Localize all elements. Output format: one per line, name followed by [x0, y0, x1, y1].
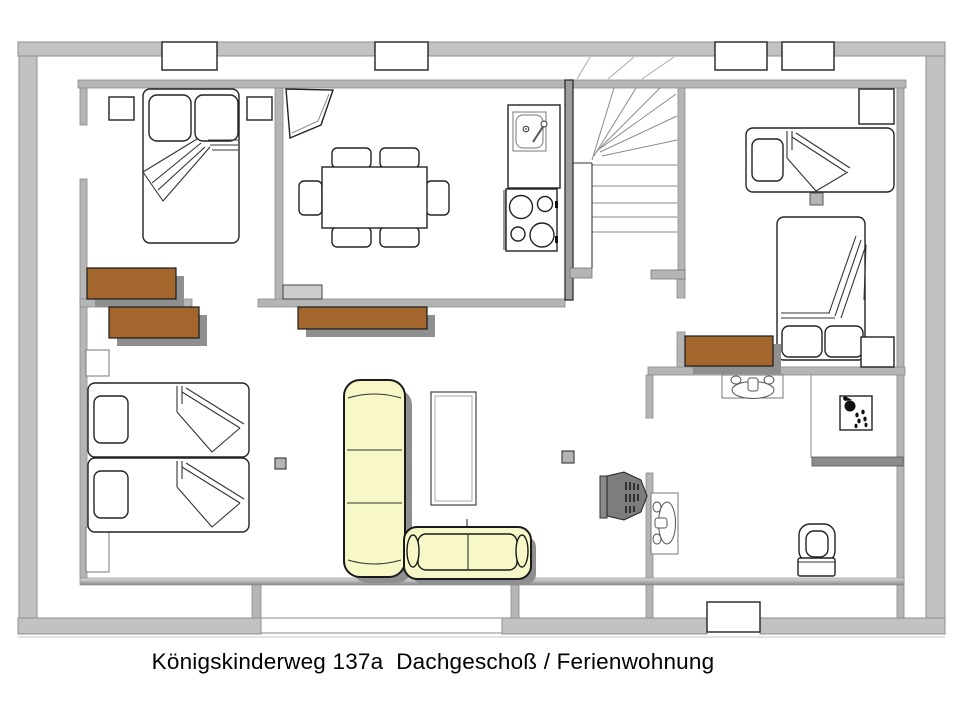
- toilet: [798, 524, 835, 576]
- inner-wall-east: [897, 88, 904, 585]
- shower-wall: [812, 457, 903, 466]
- burner: [510, 196, 533, 219]
- stove-knob: [555, 236, 558, 243]
- toilet-tank: [798, 558, 835, 576]
- wall-dining-south: [258, 299, 565, 307]
- coffee-table: [431, 392, 476, 505]
- chair: [380, 148, 419, 168]
- outer-wall-top: [18, 42, 162, 56]
- outer-wall-top: [767, 42, 782, 56]
- roof-window: [162, 42, 217, 70]
- coffee-table-inner: [435, 396, 472, 501]
- burner: [530, 223, 554, 247]
- tap-handle: [764, 376, 774, 384]
- staircase: [573, 57, 677, 268]
- pillow: [195, 95, 238, 141]
- pillow: [752, 139, 783, 181]
- pillow: [825, 326, 863, 357]
- chair: [332, 148, 371, 168]
- toilet-bowl: [806, 531, 828, 557]
- sideboard: [298, 307, 427, 329]
- pillow: [94, 471, 128, 518]
- washbasin-top: [722, 375, 783, 399]
- sofa-loveseat: [404, 519, 536, 584]
- bathroom: [651, 375, 872, 576]
- dresser: [87, 268, 176, 299]
- wall-stairwell-east: [678, 88, 685, 270]
- outer-wall-right: [926, 56, 945, 634]
- roof-window: [715, 42, 767, 70]
- burner: [511, 227, 525, 241]
- outer-wall-left: [19, 56, 37, 634]
- nightstand: [861, 337, 894, 367]
- sofa-body: [344, 380, 405, 577]
- post: [562, 451, 574, 463]
- chimney-corner: [286, 89, 333, 138]
- stair-winders: [592, 88, 677, 160]
- tap-handle: [731, 376, 741, 384]
- inner-wall-west: [80, 179, 87, 578]
- sofa-arm: [516, 535, 528, 567]
- roof-window: [375, 42, 428, 70]
- dining-kitchen: [283, 89, 560, 299]
- floorplan-drawing: [0, 0, 960, 720]
- tap-handle: [653, 534, 661, 544]
- nightstand: [109, 97, 134, 120]
- inner-wall-west: [80, 88, 87, 125]
- wall-stairwell-west: [565, 80, 573, 300]
- wall-connector: [897, 585, 904, 618]
- sleeping-alcove: [86, 350, 249, 572]
- post: [810, 193, 823, 205]
- stair-landing-stub: [570, 268, 592, 278]
- pillow: [149, 95, 191, 141]
- sofa-long: [344, 380, 412, 583]
- sink-drain-dot: [525, 128, 527, 130]
- tap-handle: [653, 502, 661, 512]
- shower: [840, 396, 872, 430]
- stove-knob: [555, 201, 558, 208]
- faucet-knob: [541, 121, 547, 127]
- outer-wall-bottom: [760, 618, 945, 634]
- kitchen-sink-unit: [508, 105, 560, 188]
- radiator: [283, 285, 322, 299]
- stair-treads: [592, 165, 677, 232]
- post: [275, 458, 286, 469]
- nightstand: [86, 350, 109, 376]
- dresser: [685, 336, 773, 366]
- sofa-arm: [407, 535, 419, 567]
- plan-caption: Königskinderweg 137a Dachgeschoß / Ferie…: [152, 649, 715, 675]
- inner-wall-north: [78, 80, 906, 88]
- bedroom-2: [685, 89, 894, 374]
- outer-wall-top: [217, 42, 375, 56]
- kitchen-stove: [503, 189, 558, 251]
- outer-wall-top: [428, 42, 715, 56]
- wall-bedroom1-east: [275, 88, 283, 300]
- nightstand: [247, 97, 272, 120]
- outer-wall-top: [834, 42, 945, 56]
- pillow: [94, 396, 128, 443]
- chair: [299, 181, 322, 215]
- fan-body: [607, 472, 647, 520]
- fan-mount: [600, 476, 607, 518]
- faucet: [655, 518, 667, 528]
- wall-hall-east: [677, 332, 685, 368]
- wall-connector: [646, 585, 653, 618]
- stair-landing-stub: [651, 270, 685, 279]
- chair: [380, 227, 419, 247]
- chair: [332, 227, 371, 247]
- nightstand: [86, 527, 109, 572]
- pillow: [782, 326, 822, 357]
- wall-connector: [511, 585, 519, 618]
- dining-table: [322, 167, 427, 228]
- floorplan-page: Königskinderweg 137a Dachgeschoß / Ferie…: [0, 0, 960, 720]
- faucet: [748, 378, 758, 391]
- roof-window: [707, 602, 760, 632]
- wall-connector: [252, 585, 261, 618]
- washbasin-left: [651, 493, 678, 554]
- outer-wall-bottom: [502, 618, 707, 634]
- burner: [538, 197, 553, 212]
- chair: [426, 181, 449, 215]
- bedroom-1: [87, 89, 272, 307]
- wall-bathroom-west: [646, 375, 653, 418]
- outer-wall-bottom: [18, 618, 261, 634]
- stair-winders-upper: [577, 57, 674, 79]
- wall-fan: [600, 472, 647, 520]
- roof-window: [782, 42, 834, 70]
- shower-head-icon: [845, 401, 856, 412]
- sideboard: [109, 307, 199, 338]
- nightstand: [859, 89, 894, 124]
